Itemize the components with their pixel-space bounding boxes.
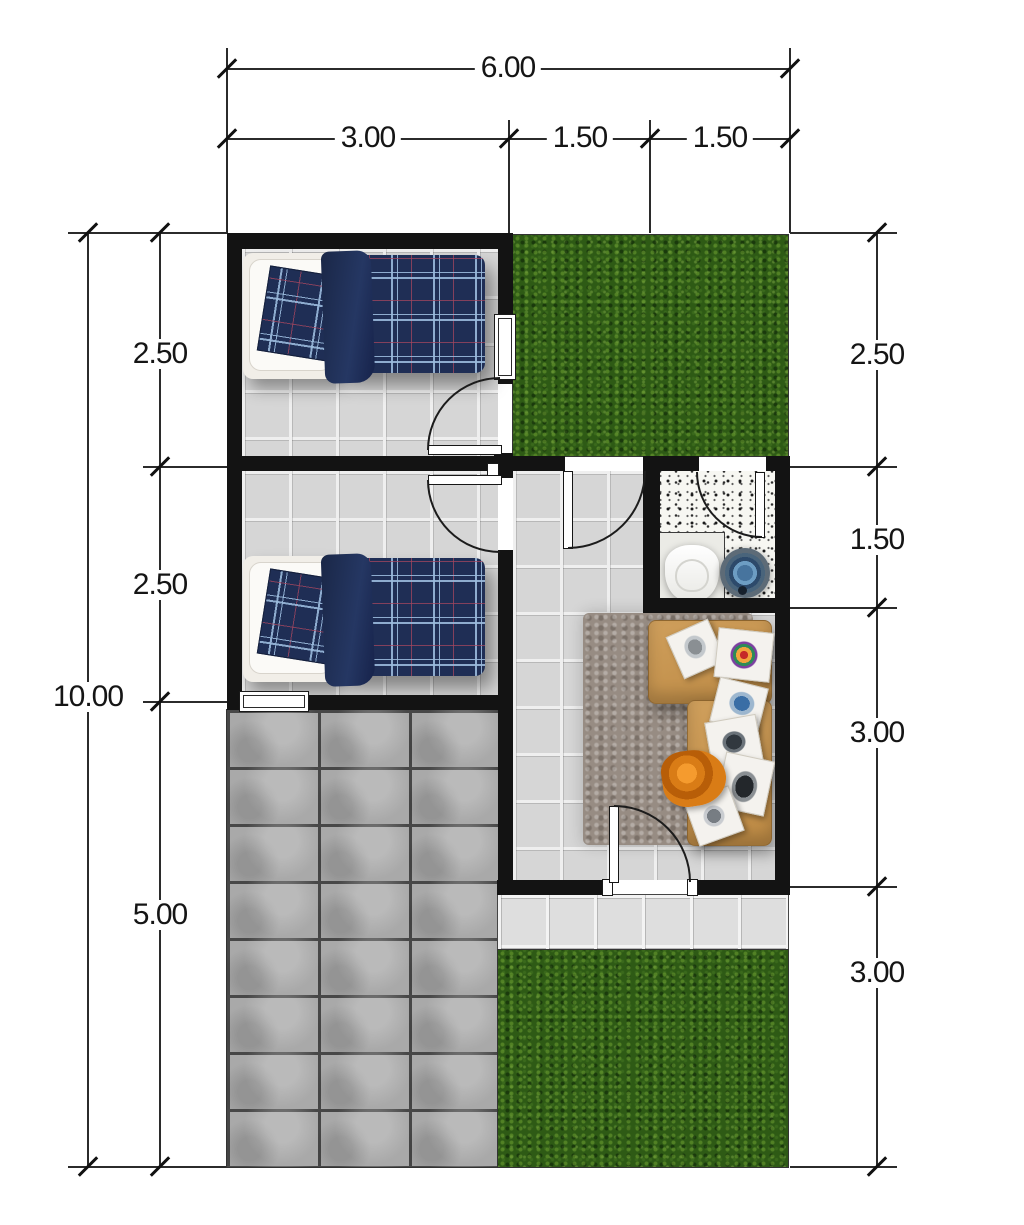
dim-top-seg-3: 1.50 (687, 123, 753, 153)
squat-toilet (665, 545, 719, 601)
dim-right-seg-4: 3.00 (844, 958, 910, 988)
carport-paving (227, 710, 498, 1167)
dim-left-seg-3: 5.00 (127, 900, 193, 930)
front-door (563, 471, 573, 549)
wall-hall-top (513, 456, 565, 471)
side-yard-grass (513, 235, 788, 456)
dim-left-seg-2: 2.50 (127, 570, 193, 600)
extension-line (790, 232, 897, 234)
backyard-grass (498, 950, 788, 1167)
dim-right-seg-1: 2.50 (844, 340, 910, 370)
extension-line (790, 607, 897, 609)
bed-bedroom-2 (243, 554, 487, 686)
wall-living-bottom-left (497, 880, 603, 895)
extension-line (790, 1166, 897, 1168)
dim-left-seg-1: 2.50 (127, 339, 193, 369)
extension-line (790, 466, 897, 468)
living-room-door (609, 806, 619, 883)
wall-bedrooms-hall (498, 550, 513, 882)
sofa-pillow-mandala (714, 627, 775, 683)
dim-right-seg-3: 3.00 (844, 718, 910, 748)
bed-bedroom-1 (243, 251, 487, 383)
bed-blanket-drape (321, 250, 376, 384)
dim-top-seg-1: 3.00 (335, 123, 401, 153)
wall-top (227, 233, 513, 249)
extension-line (68, 232, 227, 234)
wall-left (227, 233, 242, 710)
dim-top-total: 6.00 (475, 53, 541, 83)
dim-left-total: 10.00 (47, 682, 129, 712)
wall-bathroom-bottom (643, 598, 790, 613)
extension-line (790, 886, 897, 888)
dim-top-seg-2: 1.50 (547, 123, 613, 153)
wall-living-bottom-right (698, 880, 790, 895)
wall-bedroom1-right-upper (498, 233, 513, 315)
wall-bedroom-divider (227, 456, 497, 471)
dimension-line (876, 233, 878, 1167)
dim-right-seg-2: 1.50 (844, 525, 910, 555)
bathroom-door (755, 472, 765, 538)
bedroom-2-door (428, 475, 502, 485)
floor-plan-canvas: 6.00 3.00 1.50 1.50 10.00 2.50 2.50 5.00… (0, 0, 1024, 1225)
door-jamb (687, 879, 698, 896)
bedroom-1-door (428, 445, 502, 455)
bed-blanket-drape (321, 553, 376, 687)
terrace-floor (498, 895, 788, 950)
wall-bathroom-left (643, 456, 660, 613)
extension-line (68, 1166, 227, 1168)
wall-right (775, 456, 790, 895)
bedroom-1-window (494, 314, 516, 380)
bucket-dipper (738, 586, 747, 595)
bedroom-2-window (239, 691, 309, 712)
